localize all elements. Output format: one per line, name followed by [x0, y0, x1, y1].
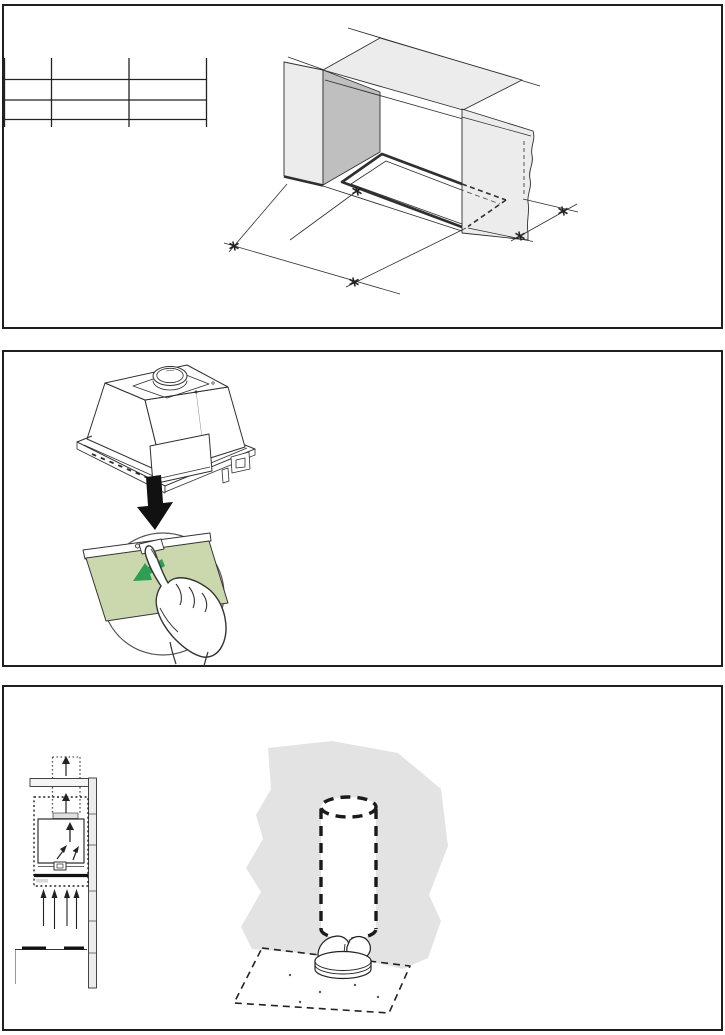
- cutout-opening: [342, 154, 462, 227]
- cutout-leader-line: [290, 191, 357, 240]
- latch-pivot: [135, 544, 139, 548]
- panel-filter-removal: [3, 351, 722, 666]
- duct-collar: [315, 952, 371, 979]
- panel-installation-venting: [3, 686, 722, 1030]
- hood-body: [38, 819, 84, 863]
- airflow-schematic: [15, 756, 97, 988]
- side-bracket: [231, 452, 250, 473]
- shelf-front-edge: [323, 186, 468, 233]
- spec-table: [5, 58, 207, 127]
- manual-page: [0, 0, 725, 1035]
- wall-duct-figure: [234, 741, 448, 1013]
- width-dimension-line: [224, 243, 400, 294]
- cabinet-cutout-figure: [224, 28, 578, 294]
- hood-collar: [53, 813, 78, 819]
- down-arrow: [137, 475, 173, 530]
- non-return-valve: [315, 936, 371, 979]
- right-side-panel-torn: [462, 109, 534, 240]
- panel-cutout-dimensions: [3, 5, 722, 328]
- wall-section: [89, 778, 97, 988]
- hood-insert-figure: [77, 365, 255, 493]
- left-side-panel: [284, 62, 323, 185]
- cabinet-shelf: [30, 779, 89, 787]
- filter-handle: [54, 862, 66, 870]
- filter-removal-detail: [83, 533, 228, 666]
